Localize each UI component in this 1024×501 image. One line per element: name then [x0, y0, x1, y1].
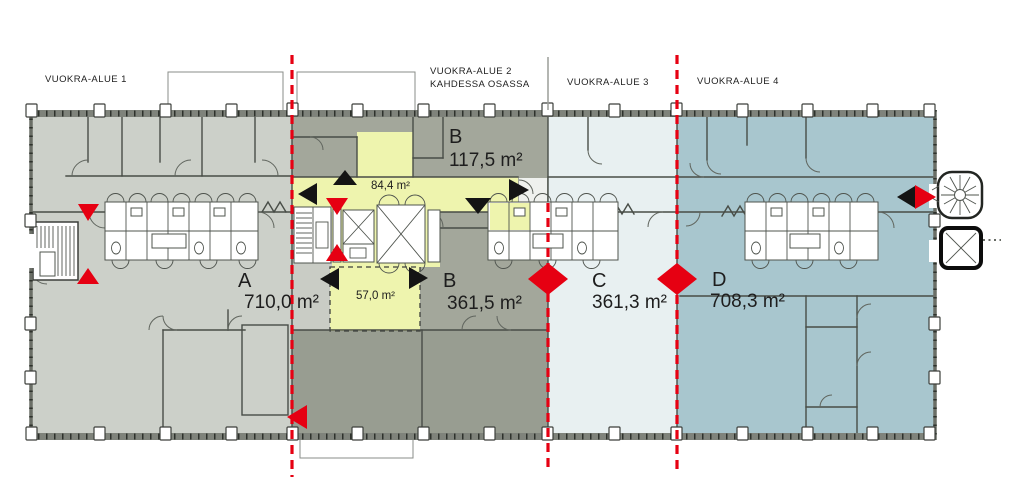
floor-plan-canvas: VUOKRA-ALUE 1 VUOKRA-ALUE 2 KAHDESSA OSA… — [0, 0, 1024, 501]
unit-c-letter: C — [592, 270, 606, 292]
zone3-label: VUOKRA-ALUE 3 — [567, 77, 649, 88]
unit-b-lower-area: 361,5 m² — [447, 293, 522, 314]
unit-d-letter: D — [712, 269, 726, 291]
left-staircase — [33, 222, 78, 280]
spiral-staircase — [932, 172, 982, 218]
zone1-label: VUOKRA-ALUE 1 — [45, 74, 127, 85]
block-area-label: 57,0 m² — [356, 290, 395, 302]
zone4-label: VUOKRA-ALUE 4 — [697, 76, 779, 87]
unit-b-lower-letter: B — [443, 270, 456, 292]
unit-a-letter: A — [238, 270, 252, 292]
zone2-dark-room — [292, 330, 548, 435]
unit-a-area: 710,0 m² — [244, 292, 319, 313]
service-core-1 — [105, 194, 258, 269]
unit-d-area: 708,3 m² — [710, 291, 785, 312]
unit-b-upper-letter: B — [449, 126, 462, 148]
zone2-label-line2: KAHDESSA OSASSA — [430, 79, 530, 90]
zone3-area — [548, 113, 677, 437]
unit-c-area: 361,3 m² — [592, 292, 667, 313]
highlight-stem — [357, 132, 413, 178]
corridor-area-label: 84,4 m² — [371, 180, 410, 192]
unit-b-upper-area: 117,5 m² — [449, 150, 523, 171]
service-core-2 — [488, 194, 618, 269]
zone2-label-line1: VUOKRA-ALUE 2 — [430, 66, 512, 77]
service-core-3 — [745, 194, 878, 269]
exterior-elevator — [941, 228, 1001, 268]
